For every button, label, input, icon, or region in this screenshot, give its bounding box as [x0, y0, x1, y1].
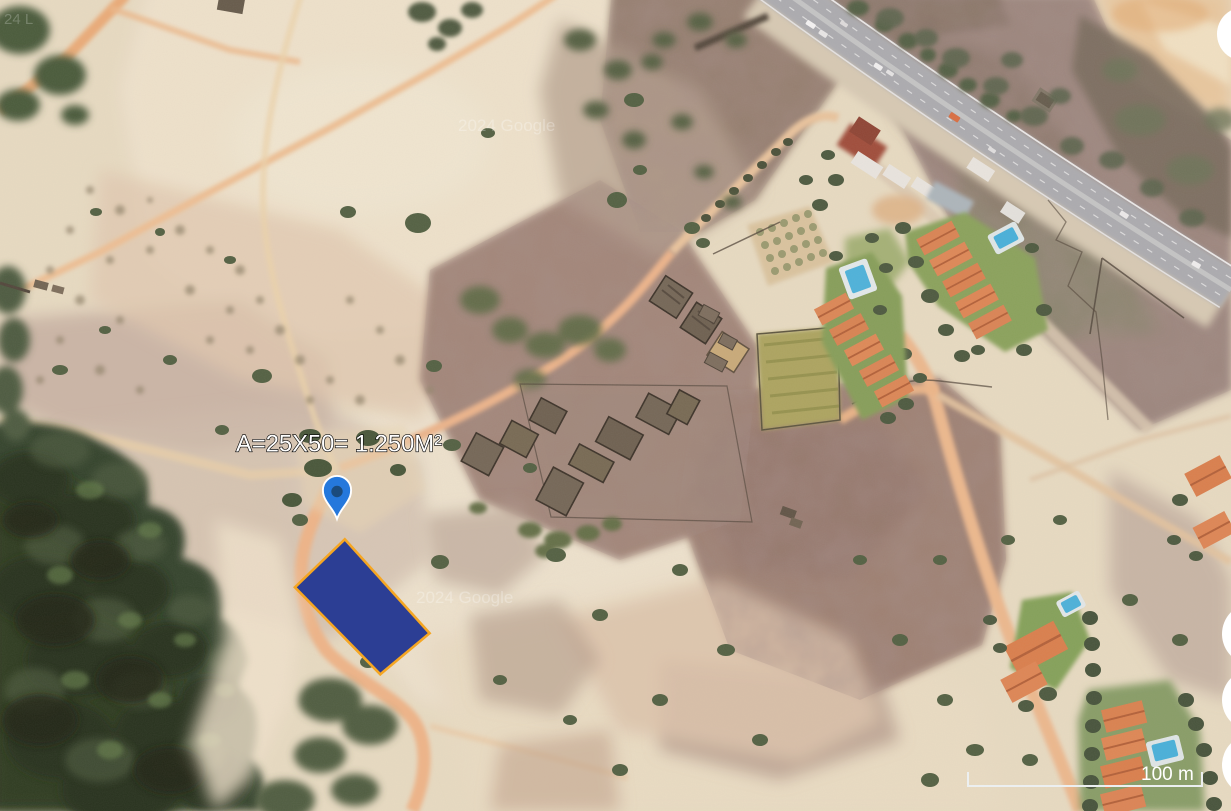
svg-text:100 m: 100 m — [1141, 764, 1194, 785]
svg-text:2024 Google: 2024 Google — [416, 588, 513, 607]
svg-text:24 L: 24 L — [4, 11, 33, 28]
svg-text:A=25X50= 1.250M²: A=25X50= 1.250M² — [236, 431, 442, 458]
svg-text:2024 Google: 2024 Google — [458, 116, 555, 135]
